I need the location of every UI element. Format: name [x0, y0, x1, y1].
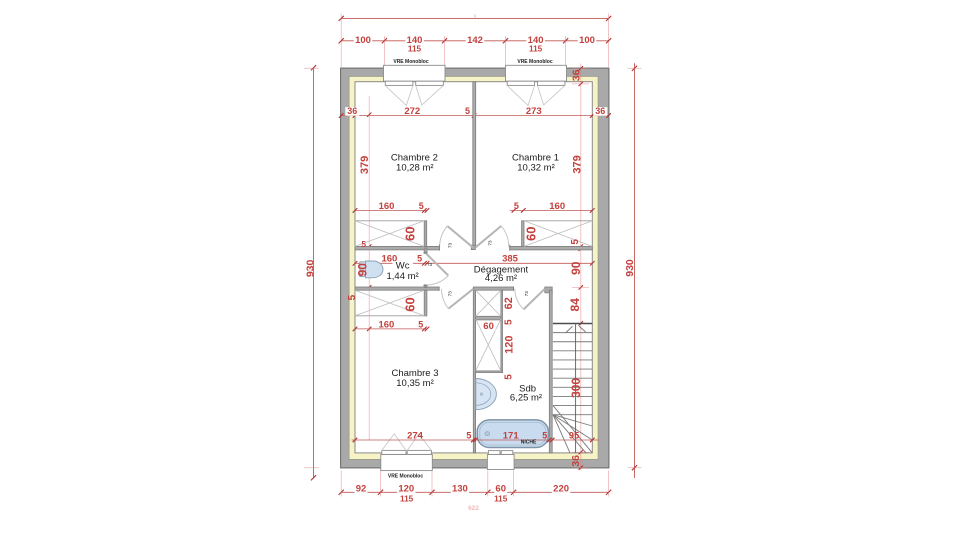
- svg-text:930: 930: [305, 259, 317, 277]
- svg-text:90: 90: [356, 263, 370, 277]
- svg-text:120: 120: [398, 483, 414, 494]
- svg-text:10,28 m²: 10,28 m²: [396, 163, 434, 174]
- svg-text:73: 73: [488, 240, 493, 246]
- svg-text:62: 62: [503, 297, 515, 309]
- svg-text:VRE Monobloc: VRE Monobloc: [393, 59, 428, 65]
- svg-text:5: 5: [466, 431, 471, 441]
- svg-text:Wc: Wc: [396, 261, 410, 272]
- svg-text:10,35 m²: 10,35 m²: [396, 378, 434, 389]
- svg-text:10,32 m²: 10,32 m²: [517, 163, 555, 174]
- svg-text:120: 120: [503, 336, 515, 354]
- svg-text:60: 60: [495, 483, 506, 494]
- svg-text:930: 930: [624, 259, 636, 277]
- svg-text:6,25 m²: 6,25 m²: [510, 392, 542, 403]
- svg-text:272: 272: [404, 106, 420, 117]
- svg-text:60: 60: [403, 227, 418, 241]
- svg-text:115: 115: [408, 45, 422, 54]
- svg-text:300: 300: [569, 378, 583, 398]
- svg-text:130: 130: [452, 483, 468, 494]
- svg-text:5: 5: [465, 106, 470, 116]
- svg-text:1,44 m²: 1,44 m²: [386, 271, 418, 282]
- svg-text:73: 73: [524, 291, 529, 297]
- svg-text:5: 5: [419, 201, 424, 211]
- svg-text:171: 171: [503, 431, 520, 442]
- svg-text:5: 5: [542, 431, 547, 441]
- svg-text:95: 95: [569, 431, 580, 442]
- svg-text:VRE Monobloc: VRE Monobloc: [388, 473, 423, 479]
- svg-text:5: 5: [417, 254, 422, 264]
- svg-text:36: 36: [570, 455, 582, 467]
- svg-text:5: 5: [504, 374, 515, 380]
- svg-text:90: 90: [569, 261, 583, 275]
- svg-text:5: 5: [347, 294, 358, 300]
- svg-text:622: 622: [468, 505, 479, 512]
- svg-text:5: 5: [418, 319, 423, 329]
- svg-text:84: 84: [568, 298, 582, 312]
- svg-text:VRE Monobloc: VRE Monobloc: [517, 59, 552, 65]
- svg-text:5: 5: [504, 319, 515, 325]
- svg-text:73: 73: [427, 262, 433, 267]
- svg-text:NICHE: NICHE: [521, 440, 537, 446]
- svg-text:5: 5: [570, 239, 581, 245]
- svg-text:36: 36: [347, 106, 357, 116]
- svg-text:115: 115: [529, 45, 543, 54]
- svg-text:385: 385: [502, 254, 519, 265]
- svg-text:5: 5: [361, 240, 366, 249]
- svg-text:36: 36: [570, 69, 582, 81]
- svg-text:160: 160: [549, 201, 565, 212]
- svg-text:379: 379: [359, 156, 371, 174]
- svg-text:100: 100: [579, 35, 595, 46]
- svg-text:220: 220: [553, 483, 569, 494]
- svg-text:115: 115: [494, 495, 508, 504]
- svg-text:60: 60: [483, 321, 494, 332]
- svg-text:73: 73: [447, 243, 452, 249]
- svg-text:379: 379: [572, 155, 584, 173]
- svg-text:36: 36: [595, 106, 605, 116]
- svg-text:73: 73: [448, 291, 453, 297]
- svg-text:60: 60: [524, 227, 539, 241]
- svg-text:92: 92: [356, 483, 367, 494]
- svg-text:160: 160: [378, 319, 394, 330]
- svg-text:273: 273: [526, 106, 542, 117]
- svg-text:115: 115: [400, 495, 414, 504]
- svg-text:5: 5: [514, 201, 519, 211]
- svg-text:142: 142: [467, 35, 483, 46]
- svg-text:160: 160: [379, 201, 395, 212]
- svg-text:100: 100: [355, 35, 371, 46]
- svg-text:4,26 m²: 4,26 m²: [485, 273, 517, 284]
- svg-text:274: 274: [407, 431, 424, 442]
- svg-text:60: 60: [402, 297, 417, 311]
